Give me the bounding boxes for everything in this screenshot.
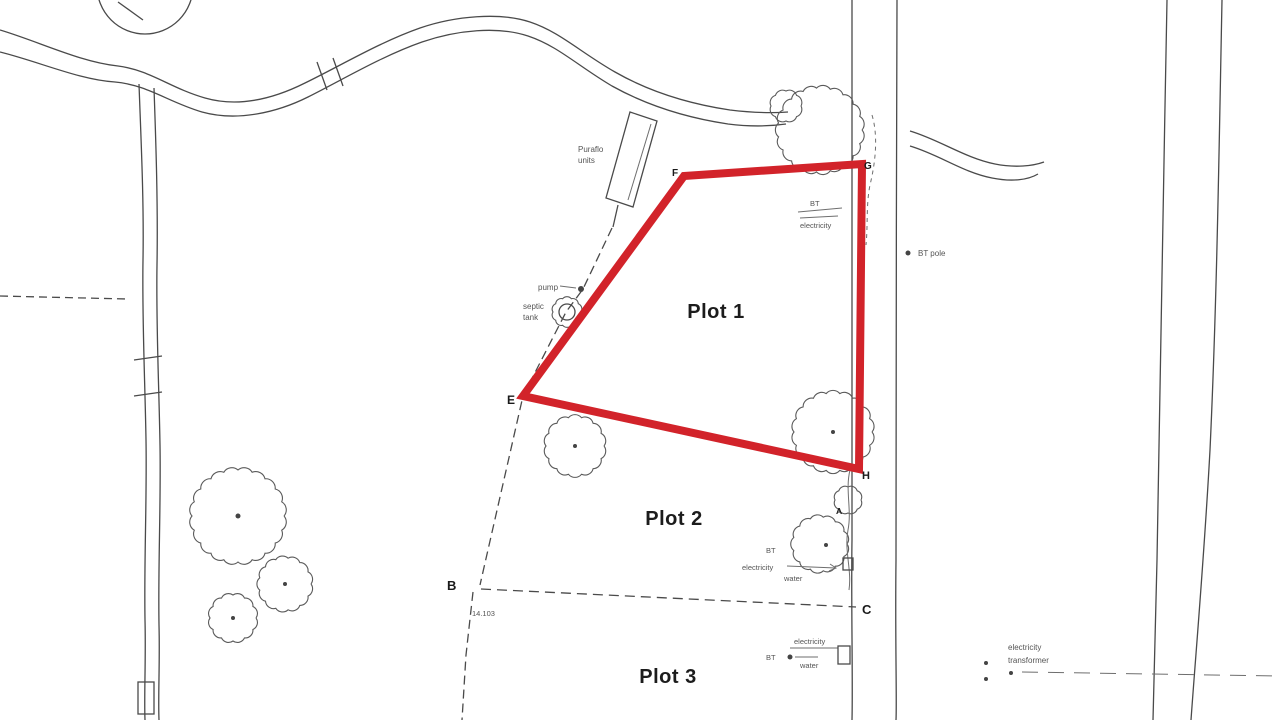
road [852,0,1222,720]
transformer-label-line1: electricity [1008,643,1041,652]
marker-b: B [447,578,456,593]
pond-top-left [97,0,193,34]
marker-f: F [672,168,678,179]
pump-label: pump [538,283,559,292]
plot2-plot3-boundary-dashed [481,589,856,607]
drainage-features [552,112,657,327]
road-west-edge [852,0,853,720]
pond-outline [97,0,193,34]
tree-trunk-dot [231,616,235,620]
tree-top-right-small [770,90,802,122]
pump-leader-line [560,286,576,288]
plot1-label: Plot 1 [687,301,744,323]
track-right-line [154,88,160,720]
dimension-label: 14.103 [472,609,495,618]
bt-mid-label: BT [766,546,776,555]
stream-upper-line [0,16,788,112]
puraflo-label-line2: units [578,156,595,165]
septic-label-line2: tank [523,313,539,322]
track-structure [138,682,154,714]
tree-trunk-dot [236,514,241,519]
bt-bottom-label: BT [766,653,776,662]
transformer-dot-1 [984,661,988,665]
tree-trunk-dot [573,444,577,448]
hedge-line [847,470,850,590]
stream-lower-line [0,30,786,126]
electricity-mid-label: electricity [742,563,774,572]
tree-plot2-entrance [791,515,849,573]
puraflo-unit-rect [606,112,657,207]
site-plan-page: Plot 1 Plot 2 Plot 3 B C E F G H A Puraf… [0,0,1280,720]
road-east-edge-1 [1153,0,1167,720]
transformer-dot-2 [984,677,988,681]
plot3-gate-box [838,646,850,664]
septic-label-line1: septic [523,302,544,311]
water-mid-label: water [783,574,803,583]
site-plan-svg: Plot 1 Plot 2 Plot 3 B C E F G H A Puraf… [0,0,1280,720]
marker-e: E [507,393,515,407]
transformer-label-line2: transformer [1008,656,1049,665]
septic-tank-circle [559,304,575,320]
vegetation-dashed-arc [866,115,876,245]
road-east-edge-2 [1191,0,1222,720]
electricity-top-label: electricity [800,221,832,230]
bt-top-label: BT [810,199,820,208]
plot2-label: Plot 2 [645,508,702,530]
road-verge-line [896,0,897,720]
marker-h: H [862,470,870,482]
east-stream-upper [910,131,1044,166]
puraflo-inner-line [628,124,651,200]
plot-labels: Plot 1 Plot 2 Plot 3 [639,301,744,688]
west-boundary-dashed [480,228,612,585]
electricity-bottom-label: electricity [794,637,826,646]
bt-pole-label: BT pole [918,249,946,258]
field-boundary-dashed [0,296,127,299]
pond-chord-line [118,2,143,20]
transformer-dot-3 [1009,671,1013,675]
tree-trunk-dot [831,430,835,434]
east-stream-lower [910,146,1038,180]
water-bottom-label: water [799,661,819,670]
marker-a: A [836,506,842,516]
marker-g: G [864,161,872,172]
puraflo-tail [613,205,618,227]
plot-boundaries-dashed [462,228,856,720]
stream [0,16,788,126]
overhead-wires [798,208,842,218]
farm-track [134,84,162,720]
tree-trunk-dot [283,582,287,586]
puraflo-label-line1: Puraflo [578,145,604,154]
plot3-label: Plot 3 [639,666,696,688]
track-left-line [139,84,146,720]
transformer-dashed-line [1022,672,1280,676]
marker-c: C [862,602,872,617]
bt-pole-dot [906,251,911,256]
bt-bottom-dot [788,655,793,660]
tree-trunk-dot [824,543,828,547]
